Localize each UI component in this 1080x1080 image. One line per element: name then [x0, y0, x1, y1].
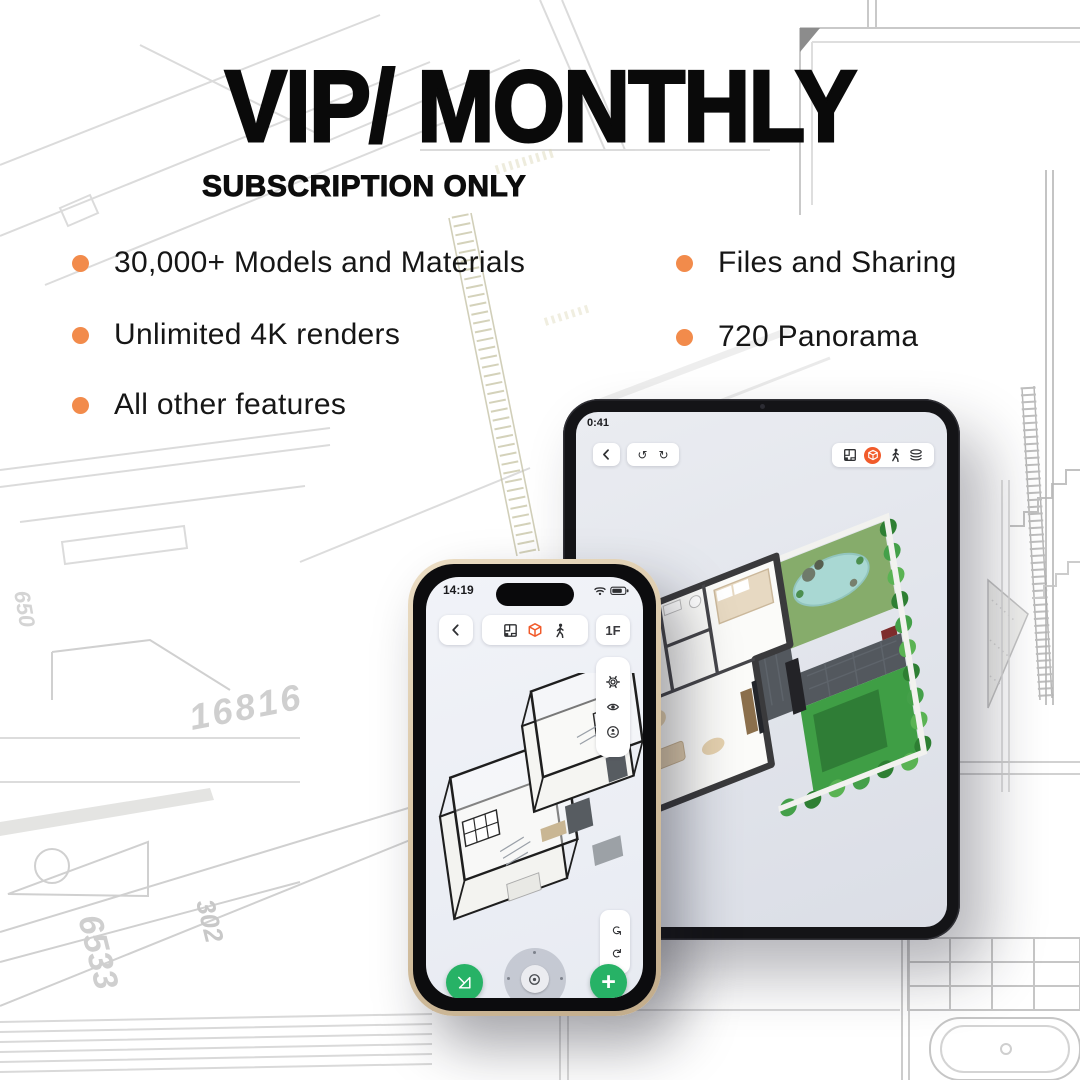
tablet-back-button[interactable]	[593, 443, 620, 466]
bullet-dot	[72, 255, 89, 272]
dynamic-island	[496, 583, 574, 606]
floor-selector-button[interactable]: 1F	[596, 615, 630, 645]
undo-icon[interactable]: ↺	[637, 448, 647, 462]
dim-label: 6533	[70, 911, 125, 994]
feature-label: 720 Panorama	[718, 320, 918, 354]
phone-view-toolbar[interactable]	[482, 615, 588, 645]
settings-gear-icon[interactable]	[606, 675, 620, 689]
bullet-dot	[72, 327, 89, 344]
feature-label: All other features	[114, 388, 346, 422]
feature-label: Files and Sharing	[718, 246, 957, 280]
phone-back-button[interactable]	[439, 615, 473, 645]
draw-tool-button[interactable]	[446, 964, 483, 998]
tablet-view-toolbar[interactable]	[832, 443, 934, 467]
plan-2d-icon[interactable]	[843, 448, 857, 462]
feature-item: Files and Sharing	[676, 246, 957, 280]
redo-icon[interactable]: ↻	[608, 948, 623, 959]
orbit-camera-icon	[528, 973, 541, 986]
eye-icon[interactable]	[606, 700, 620, 714]
joystick-dot	[560, 977, 563, 980]
phone-status-icons	[594, 586, 630, 596]
tablet-status-time: 0:41	[587, 417, 609, 429]
page-subtitle: SUBSCRIPTION ONLY	[202, 170, 526, 204]
undo-icon[interactable]: ↺	[608, 925, 623, 936]
dim-label: 16816	[186, 676, 307, 738]
phone-bezel: 14:19 1F	[413, 564, 656, 1011]
bullet-dot	[676, 255, 693, 272]
battery-icon	[610, 586, 630, 596]
dim-label: 650	[9, 589, 40, 630]
add-item-button[interactable]: +	[590, 964, 627, 998]
phone-screen: 14:19 1F	[426, 577, 643, 998]
feature-label: Unlimited 4K renders	[114, 318, 400, 352]
phone-status-time: 14:19	[443, 583, 474, 597]
feature-item: All other features	[72, 388, 346, 422]
page-title: VIP/ MONTHLY	[43, 54, 1037, 160]
street-view-icon[interactable]	[606, 725, 620, 739]
dim-label: 302	[190, 896, 230, 946]
feature-item: 720 Panorama	[676, 320, 918, 354]
feature-item: 30,000+ Models and Materials	[72, 246, 525, 280]
feature-item: Unlimited 4K renders	[72, 318, 400, 352]
poster-canvas: 16816 6533 302 650 A VIP/ MONTHLY SUBSCR…	[0, 0, 1080, 1080]
layers-icon[interactable]	[909, 448, 923, 462]
cube-3d-icon[interactable]	[527, 622, 543, 638]
tablet-undo-redo[interactable]: ↺ ↻	[627, 443, 679, 466]
wifi-icon	[594, 586, 606, 596]
bullet-dot	[72, 397, 89, 414]
plan-2d-icon[interactable]	[503, 623, 518, 638]
walk-mode-icon[interactable]	[888, 448, 902, 462]
camera-joystick[interactable]	[504, 948, 566, 998]
cube-3d-icon[interactable]	[864, 447, 881, 464]
phone-mockup: 14:19 1F	[408, 559, 661, 1016]
set-square-icon	[456, 974, 473, 991]
bullet-dot	[676, 329, 693, 346]
joystick-dot	[507, 977, 510, 980]
joystick-dot	[533, 951, 536, 954]
feature-label: 30,000+ Models and Materials	[114, 246, 525, 280]
walk-mode-icon[interactable]	[552, 623, 567, 638]
tablet-camera	[760, 404, 765, 409]
redo-icon[interactable]: ↻	[659, 448, 669, 462]
chevron-left-icon	[600, 448, 613, 461]
chevron-left-icon	[449, 623, 463, 637]
joystick-core[interactable]	[521, 965, 549, 993]
phone-side-panel[interactable]	[596, 657, 630, 757]
